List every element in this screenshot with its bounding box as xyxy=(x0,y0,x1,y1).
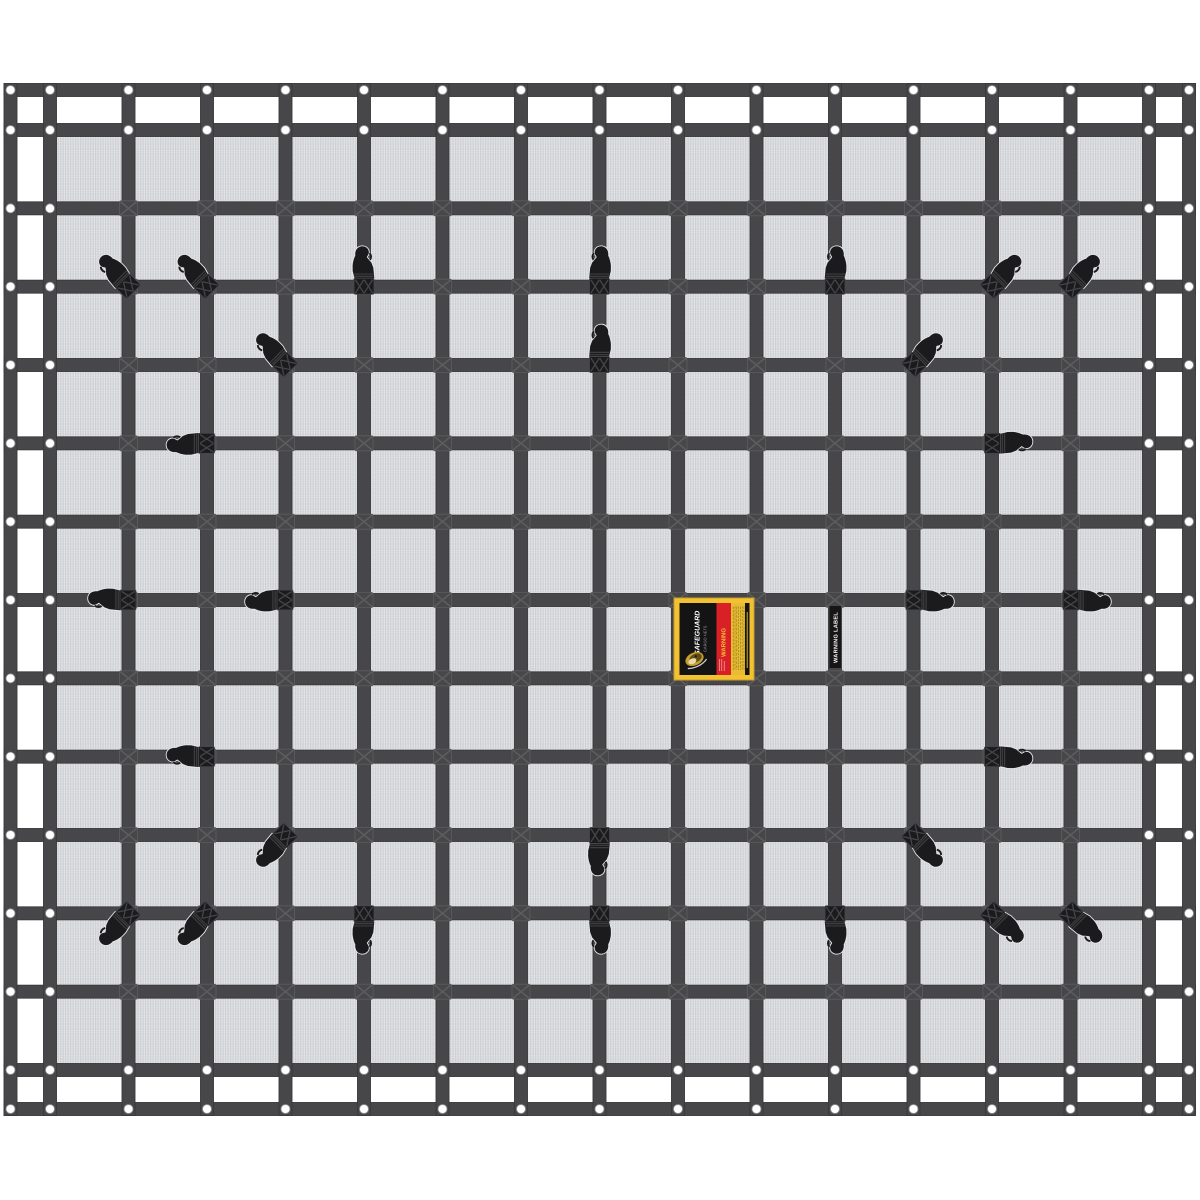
svg-text:CARGO NETS: CARGO NETS xyxy=(703,625,708,652)
svg-text:WARNING: WARNING xyxy=(721,628,728,657)
svg-text:SAFEGUARD: SAFEGUARD xyxy=(695,611,702,655)
svg-text:WARNING LABEL: WARNING LABEL xyxy=(833,612,839,663)
